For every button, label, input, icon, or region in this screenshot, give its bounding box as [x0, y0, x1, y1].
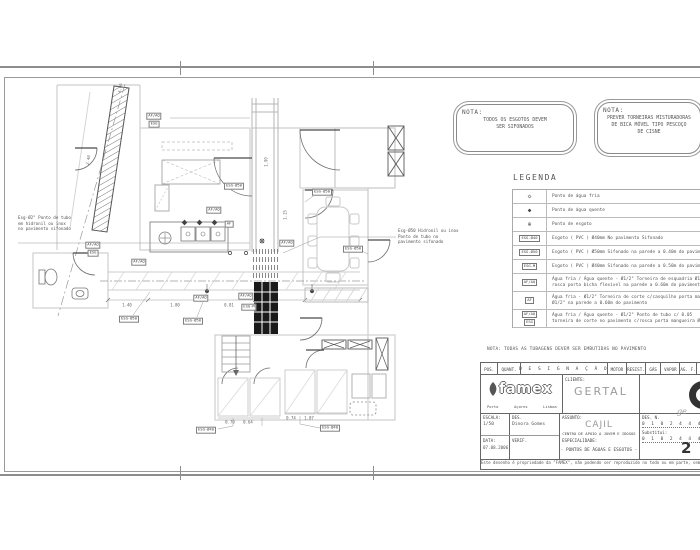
plan-tag: AF/AQ — [131, 259, 146, 266]
plan-dimension: 0.74 — [286, 416, 296, 421]
plan-tag: AF/AQ — [238, 293, 253, 300]
floor-plan — [0, 0, 700, 550]
leaf-icon — [487, 381, 499, 397]
corner-logo-cell — [639, 375, 700, 413]
bathroom-fixtures — [39, 269, 88, 299]
doors — [73, 130, 390, 384]
plan-tag: AF — [225, 221, 234, 228]
service-points — [182, 220, 313, 292]
plan-tag: ESG-Ø40 — [320, 425, 340, 432]
plan-tag: ESG-Ø50 — [183, 318, 203, 325]
plan-tag: AF/AQ — [193, 295, 208, 302]
partial-logo-icon — [639, 375, 700, 413]
plan-tag: ESG — [149, 121, 160, 128]
plan-dimension: 1.07 — [304, 416, 314, 421]
floor-grate — [253, 248, 279, 334]
plan-tag: AF/AQ — [206, 207, 221, 214]
plan-dimension: 0.81 — [224, 303, 234, 308]
plan-dimension: 1.15 — [283, 210, 288, 220]
plan-callout: Esg-Ø50 Hidronil ou inox Ponto de tubo n… — [398, 228, 478, 245]
corridor-walls — [252, 98, 278, 252]
plan-tag: ESG-M — [241, 304, 256, 311]
plan-tag: ESG-Ø40 — [196, 427, 216, 434]
plan-tag: ESG — [88, 250, 99, 257]
plan-dimension: 1.40 — [122, 303, 132, 308]
plan-dimension: 0.70 — [225, 420, 235, 425]
plan-tag: ESG-Ø50 — [312, 189, 332, 196]
bottom-fixtures — [322, 338, 388, 415]
plan-dimension: 1.80 — [170, 303, 180, 308]
stairs — [222, 336, 250, 376]
plan-tag: ESG-Ø50 — [119, 316, 139, 323]
plan-tag: AF/AQ — [146, 113, 161, 120]
plan-tag: AF/AQ — [279, 240, 294, 247]
drawing-sheet: AF/AQ ESG ESG-Ø50 ESG-Ø50 AF/AQ AF AF/AQ… — [0, 0, 700, 550]
plan-tag: AF/AQ — [85, 242, 100, 249]
plan-dimension: 0.64 — [243, 420, 253, 425]
plan-tag: ESG-Ø50 — [343, 246, 363, 253]
window-boxes — [388, 126, 404, 176]
shower-cells — [218, 370, 347, 416]
plan-tag: ESG-Ø50 — [224, 183, 244, 190]
plan-dimension: 1.90 — [264, 157, 269, 167]
plan-callout: Esg-Ø2" Ponto de tubo em hidronil ou ino… — [18, 215, 94, 232]
